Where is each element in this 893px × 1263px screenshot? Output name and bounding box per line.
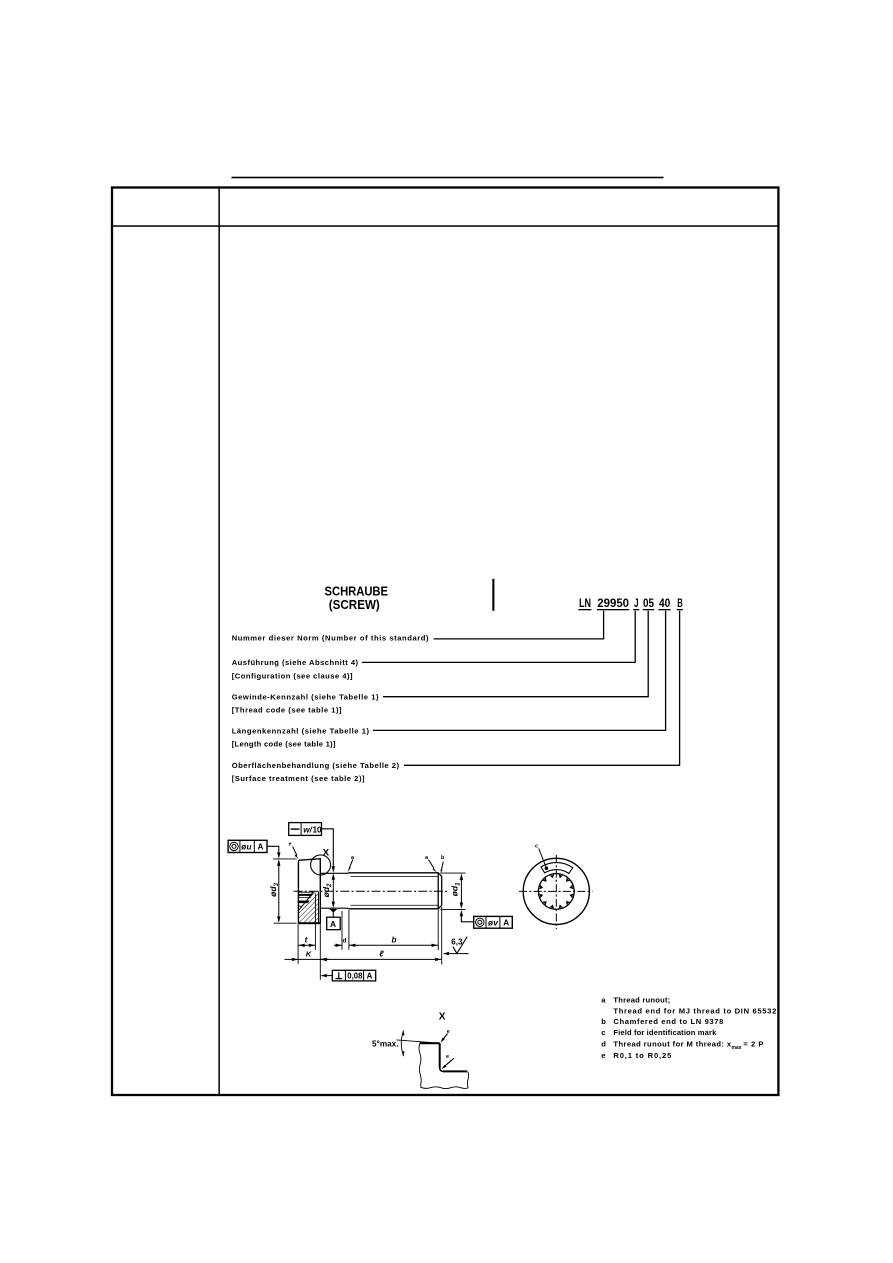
- svg-text:X: X: [439, 1012, 446, 1023]
- svg-text:A: A: [367, 972, 373, 981]
- svg-text:K: K: [306, 949, 312, 958]
- svg-text:= 2 P: = 2 P: [743, 1040, 763, 1049]
- svg-text:e: e: [601, 1051, 605, 1060]
- svg-text:05: 05: [643, 596, 654, 610]
- svg-text:Thread end for MJ thread to DI: Thread end for MJ thread to DIN 65532: [613, 1006, 776, 1015]
- svg-text:SCHRAUBE: SCHRAUBE: [325, 584, 389, 598]
- svg-text:[Surface treatment (see table: [Surface treatment (see table 2)]: [232, 774, 365, 783]
- svg-text:e: e: [446, 1054, 449, 1060]
- svg-text:d: d: [601, 1040, 606, 1049]
- svg-text:40: 40: [659, 596, 671, 610]
- svg-text:c: c: [535, 844, 538, 850]
- svg-text:Längenkennzahl (siehe Tabelle: Längenkennzahl (siehe Tabelle 1): [232, 726, 370, 735]
- svg-text:c: c: [601, 1028, 605, 1037]
- svg-text:[Length code (see table 1)]: [Length code (see table 1)]: [232, 739, 336, 748]
- svg-text:A: A: [503, 919, 509, 928]
- svg-text:Chamfered end to LN 9378: Chamfered end to LN 9378: [613, 1017, 723, 1026]
- svg-text:Field for identification mark: Field for identification mark: [613, 1028, 717, 1037]
- svg-text:ℓ: ℓ: [379, 949, 384, 959]
- svg-text:u: u: [247, 843, 252, 852]
- svg-text:e: e: [447, 1029, 450, 1035]
- svg-text:(SCREW): (SCREW): [329, 598, 380, 612]
- svg-text:Oberflächenbehandlung (siehe T: Oberflächenbehandlung (siehe Tabelle 2): [232, 761, 400, 770]
- svg-text:a: a: [601, 995, 606, 1004]
- svg-text:max: max: [732, 1045, 742, 1051]
- svg-text:[Thread code (see table 1)]: [Thread code (see table 1)]: [232, 706, 342, 715]
- svg-text:J: J: [634, 596, 639, 610]
- svg-text:[Configuration (see clause 4)]: [Configuration (see clause 4)]: [232, 671, 353, 680]
- svg-text:X: X: [323, 847, 330, 858]
- svg-text:v: v: [493, 919, 498, 928]
- svg-text:w/: w/: [303, 825, 312, 834]
- svg-text:Nummer dieser Norm (Number of: Nummer dieser Norm (Number of this stand…: [232, 633, 429, 642]
- svg-text:5°max.: 5°max.: [372, 1040, 399, 1049]
- svg-text:B: B: [677, 596, 683, 610]
- svg-text:d: d: [343, 938, 347, 945]
- svg-text:Gewinde-Kennzahl (siehe Tabell: Gewinde-Kennzahl (siehe Tabelle 1): [232, 693, 379, 702]
- svg-text:R0,1 to R0,25: R0,1 to R0,25: [613, 1051, 672, 1060]
- svg-text:e: e: [289, 842, 292, 848]
- svg-text:Thread runout for M thread: x: Thread runout for M thread: x: [613, 1040, 731, 1049]
- svg-text:Thread runout;: Thread runout;: [613, 995, 670, 1004]
- svg-text:6,3: 6,3: [451, 937, 463, 946]
- svg-text:Ausführung (siehe Abschnitt 4): Ausführung (siehe Abschnitt 4): [232, 658, 359, 667]
- svg-text:10: 10: [313, 825, 323, 834]
- svg-text:t: t: [305, 935, 308, 944]
- svg-text:b: b: [392, 935, 397, 944]
- svg-text:A: A: [330, 919, 336, 929]
- svg-text:0,08: 0,08: [347, 972, 363, 981]
- svg-text:b: b: [601, 1017, 606, 1026]
- svg-text:LN: LN: [579, 596, 591, 610]
- svg-text:29950: 29950: [597, 596, 629, 610]
- svg-text:A: A: [258, 843, 264, 852]
